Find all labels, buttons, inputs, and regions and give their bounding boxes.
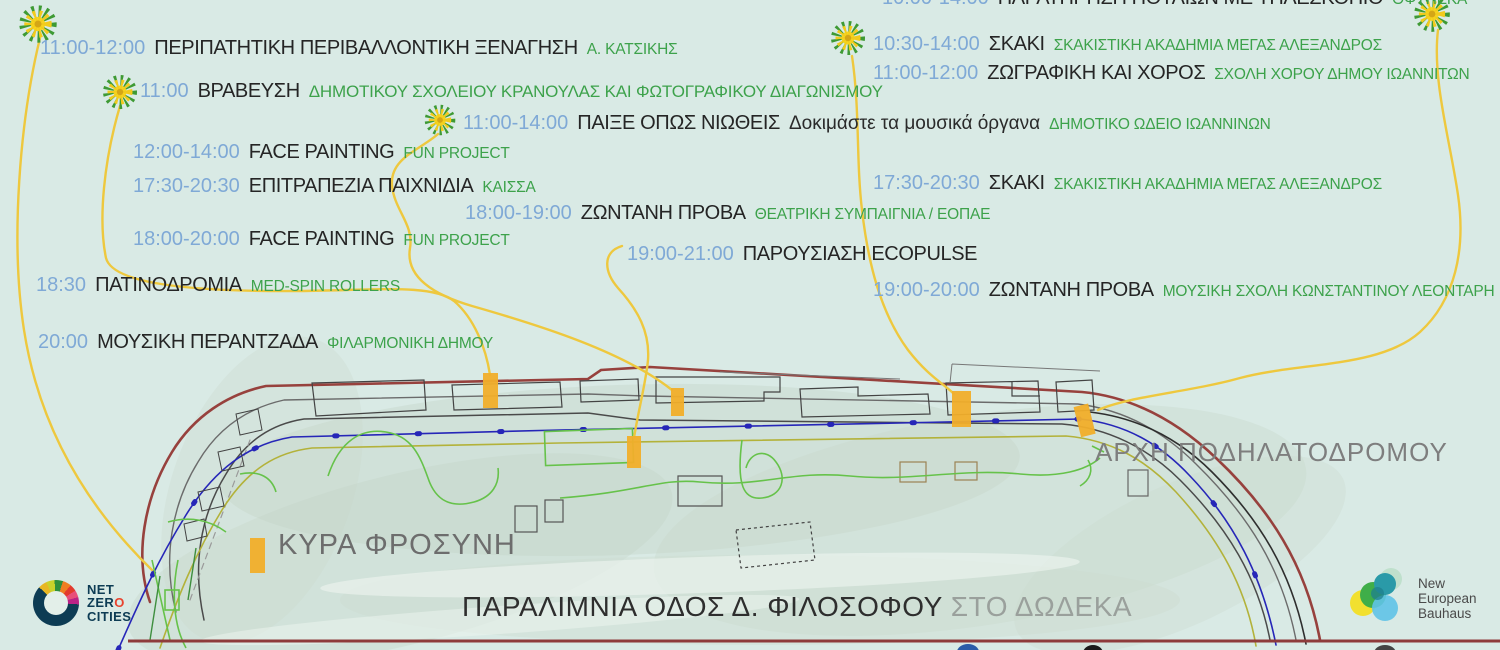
event-title: ΒΡΑΒΕΥΣΗ (198, 80, 300, 102)
event-item: 10:30-14:00ΣΚΑΚΙΣΚΑΚΙΣΤΙΚΗ ΑΚΑΔΗΜΙΑ ΜΕΓΑ… (873, 33, 1382, 57)
event-item: 18:30ΠΑΤΙΝΟΔΡΟΜΙΑMED-SPIN ROLLERS (36, 274, 400, 298)
map-label-road: ΠΑΡΑΛΙΜΝΙΑ ΟΔΟΣ Δ. ΦΙΛΟΣΟΦΟΥΣΤΟ ΔΩΔΕΚΑ (462, 591, 1132, 623)
event-title: FACE PAINTING (249, 228, 395, 250)
event-detail: Δοκιμάστε τα μουσικά όργανα (789, 113, 1040, 134)
event-organizer: FUN PROJECT (403, 145, 509, 162)
partner-logos-cropped (957, 644, 1396, 650)
nzc-line3: CITIES (87, 609, 131, 624)
event-item: 19:00-20:00ΖΩΝΤΑΝΗ ΠΡΟΒΑΜΟΥΣΙΚΗ ΣΧΟΛΗ ΚΩ… (873, 279, 1495, 303)
road-name: ΠΑΡΑΛΙΜΝΙΑ ΟΔΟΣ Δ. ΦΙΛΟΣΟΦΟΥ (462, 591, 943, 622)
event-organizer: ΜΟΥΣΙΚΗ ΣΧΟΛΗ ΚΩΝΣΤΑΝΤΙΝΟΥ ΛΕΟΝΤΑΡΗ (1163, 283, 1495, 300)
event-organizer: FUN PROJECT (403, 232, 509, 249)
event-time: 18:00-20:00 (133, 228, 240, 250)
event-time: 12:00-14:00 (133, 141, 240, 163)
event-location-marker (952, 391, 971, 427)
event-title: ΠΑΡΟΥΣΙΑΣΗ ECOPULSE (743, 243, 977, 265)
event-organizer: ΔΗΜΟΤΙΚΟ ΩΔΕΙΟ ΙΩΑΝΝΙΝΩΝ (1049, 116, 1271, 133)
event-item: 11:00-12:00ΖΩΓΡΑΦΙΚΗ ΚΑΙ ΧΟΡΟΣΣΧΟΛΗ ΧΟΡΟ… (873, 62, 1470, 86)
event-title: ΖΩΝΤΑΝΗ ΠΡΟΒΑ (581, 202, 746, 224)
event-title: ΖΩΓΡΑΦΙΚΗ ΚΑΙ ΧΟΡΟΣ (987, 62, 1205, 84)
event-time: 11:00-12:00 (873, 62, 978, 84)
event-organizer: ΣΚΑΚΙΣΤΙΚΗ ΑΚΑΔΗΜΙΑ ΜΕΓΑΣ ΑΛΕΞΑΝΔΡΟΣ (1054, 37, 1382, 54)
event-item: 18:00-19:00ΖΩΝΤΑΝΗ ΠΡΟΒΑΘΕΑΤΡΙΚΗ ΣΥΜΠΑΙΓ… (465, 202, 990, 226)
event-title: ΣΚΑΚΙ (989, 33, 1045, 55)
event-location-marker (483, 373, 498, 408)
event-item: 20:00ΜΟΥΣΙΚΗ ΠΕΡΑΝΤΖΑΔΑΦΙΛΑΡΜΟΝΙΚΗ ΔΗΜΟΥ (38, 331, 493, 355)
event-item: 17:30-20:30ΣΚΑΚΙΣΚΑΚΙΣΤΙΚΗ ΑΚΑΔΗΜΙΑ ΜΕΓΑ… (873, 172, 1382, 196)
neb-line2: European (1418, 591, 1477, 606)
event-location-marker (671, 388, 684, 416)
road-name-suffix: ΣΤΟ ΔΩΔΕΚΑ (951, 591, 1132, 622)
event-organizer: ΣΚΑΚΙΣΤΙΚΗ ΑΚΑΔΗΜΙΑ ΜΕΓΑΣ ΑΛΕΞΑΝΔΡΟΣ (1054, 176, 1382, 193)
event-organizer: ΔΗΜΟΤΙΚΟΥ ΣΧΟΛΕΙΟΥ ΚΡΑΝΟΥΛΑΣ ΚΑΙ ΦΩΤΟΓΡΑ… (309, 82, 883, 101)
event-item: 18:00-20:00FACE PAINTINGFUN PROJECT (133, 228, 510, 252)
neb-line1: New (1418, 576, 1477, 591)
event-item: 11:00-14:00ΠΑΙΞΕ ΟΠΩΣ ΝΙΩΘΕΙΣΔοκιμάστε τ… (463, 112, 1271, 136)
event-title: ΠΕΡΙΠΑΤΗΤΙΚΗ ΠΕΡΙΒΑΛΛΟΝΤΙΚΗ ΞΕΝΑΓΗΣΗ (154, 37, 578, 59)
event-organizer: ΚΑΙΣΣΑ (482, 179, 535, 196)
event-time: 10:30-14:00 (873, 33, 980, 55)
event-time: 18:00-19:00 (465, 202, 572, 224)
event-time: 18:30 (36, 274, 86, 296)
event-title: ΠΑΤΙΝΟΔΡΟΜΙΑ (95, 274, 242, 296)
event-location-marker (250, 538, 265, 573)
netzerocities-wordmark: NET ZERO CITIES (87, 583, 131, 624)
event-organizer: ΣΧΟΛΗ ΧΟΡΟΥ ΔΗΜΟΥ ΙΩΑΝΝΙΤΩΝ (1214, 66, 1469, 83)
event-item: 11:00-12:00ΠΕΡΙΠΑΤΗΤΙΚΗ ΠΕΡΙΒΑΛΛΟΝΤΙΚΗ Ξ… (40, 37, 678, 61)
event-item: 19:00-21:00ΠΑΡΟΥΣΙΑΣΗ ECOPULSE (627, 243, 986, 267)
event-title: ΜΟΥΣΙΚΗ ΠΕΡΑΝΤΖΑΔΑ (97, 331, 318, 353)
event-item: 12:00-14:00FACE PAINTINGFUN PROJECT (133, 141, 510, 165)
event-title: ΠΑΙΞΕ ΟΠΩΣ ΝΙΩΘΕΙΣ (577, 112, 780, 134)
event-organizer: Α. ΚΑΤΣΙΚΗΣ (587, 41, 678, 58)
event-time: 10:00-14:00 (882, 0, 989, 9)
event-time: 17:30-20:30 (873, 172, 980, 194)
new-european-bauhaus-logo: New European Bauhaus (1350, 568, 1477, 628)
netzerocities-ring-icon (33, 580, 79, 626)
event-time: 11:00-12:00 (40, 37, 145, 59)
event-organizer: ΘΕΑΤΡΙΚΗ ΣΥΜΠΑΙΓΝΙΑ / ΕΟΠΑΕ (755, 206, 991, 223)
event-time: 19:00-21:00 (627, 243, 734, 265)
netzerocities-logo: NET ZERO CITIES (33, 580, 131, 626)
event-time: 20:00 (38, 331, 88, 353)
event-title: ΠΑΡΑΤΗΡΗΣΗ ΠΟΥΛΙΩΝ ΜΕ ΤΗΛΕΣΚΟΠΙΟ (998, 0, 1383, 9)
event-organizer: MED-SPIN ROLLERS (251, 278, 400, 295)
neb-wordmark: New European Bauhaus (1418, 576, 1477, 621)
event-title: ΣΚΑΚΙ (989, 172, 1045, 194)
neb-blobs-icon (1350, 568, 1408, 628)
event-location-marker (627, 436, 641, 468)
event-time: 17:30-20:30 (133, 175, 240, 197)
event-item: 17:30-20:30ΕΠΙΤΡΑΠΕΖΙΑ ΠΑΙΧΝΙΔΙΑΚΑΙΣΣΑ (133, 175, 536, 199)
event-title: ΕΠΙΤΡΑΠΕΖΙΑ ΠΑΙΧΝΙΔΙΑ (249, 175, 474, 197)
event-organizer: ΟΦΥΠΕΚΑ (1392, 0, 1467, 8)
event-time: 19:00-20:00 (873, 279, 980, 301)
event-item: 10:00-14:00ΠΑΡΑΤΗΡΗΣΗ ΠΟΥΛΙΩΝ ΜΕ ΤΗΛΕΣΚΟ… (882, 0, 1467, 11)
map-label-bike-path-start: ΑΡΧΗ ΠΟΔΗΛΑΤΟΔΡΟΜΟΥ (1095, 437, 1448, 468)
map-label-kyra-frosyni: ΚΥΡΑ ΦΡΟΣΥΝΗ (278, 529, 516, 562)
event-organizer: ΦΙΛΑΡΜΟΝΙΚΗ ΔΗΜΟΥ (327, 335, 493, 352)
event-poster-map: { "events": [ {"time":"10:00-14:00","tit… (0, 0, 1500, 650)
event-time: 11:00 (140, 80, 189, 102)
neb-line3: Bauhaus (1418, 606, 1477, 621)
event-title: FACE PAINTING (249, 141, 395, 163)
event-title: ΖΩΝΤΑΝΗ ΠΡΟΒΑ (989, 279, 1154, 301)
event-time: 11:00-14:00 (463, 112, 568, 134)
event-item: 11:00ΒΡΑΒΕΥΣΗΔΗΜΟΤΙΚΟΥ ΣΧΟΛΕΙΟΥ ΚΡΑΝΟΥΛΑ… (140, 80, 883, 104)
